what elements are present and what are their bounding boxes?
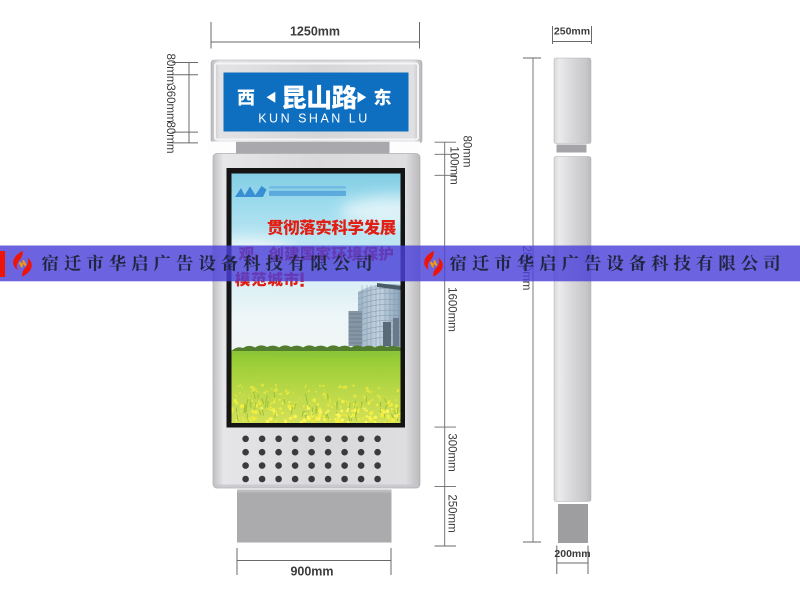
svg-text:80mm: 80mm [164,122,176,154]
svg-text:1600mm: 1600mm [445,287,457,332]
svg-text:250mm: 250mm [445,494,457,532]
svg-text:300mm: 300mm [445,433,457,471]
svg-text:100mm: 100mm [447,146,459,184]
svg-text:1250mm: 1250mm [290,25,340,39]
svg-text:80mm: 80mm [164,54,176,86]
svg-text:900mm: 900mm [290,565,333,579]
svg-text:200mm: 200mm [554,548,590,560]
svg-text:80mm: 80mm [460,136,472,168]
svg-text:360mm: 360mm [164,84,176,122]
svg-text:250mm: 250mm [554,26,590,38]
svg-text:KUN SHAN LU: KUN SHAN LU [258,112,370,126]
